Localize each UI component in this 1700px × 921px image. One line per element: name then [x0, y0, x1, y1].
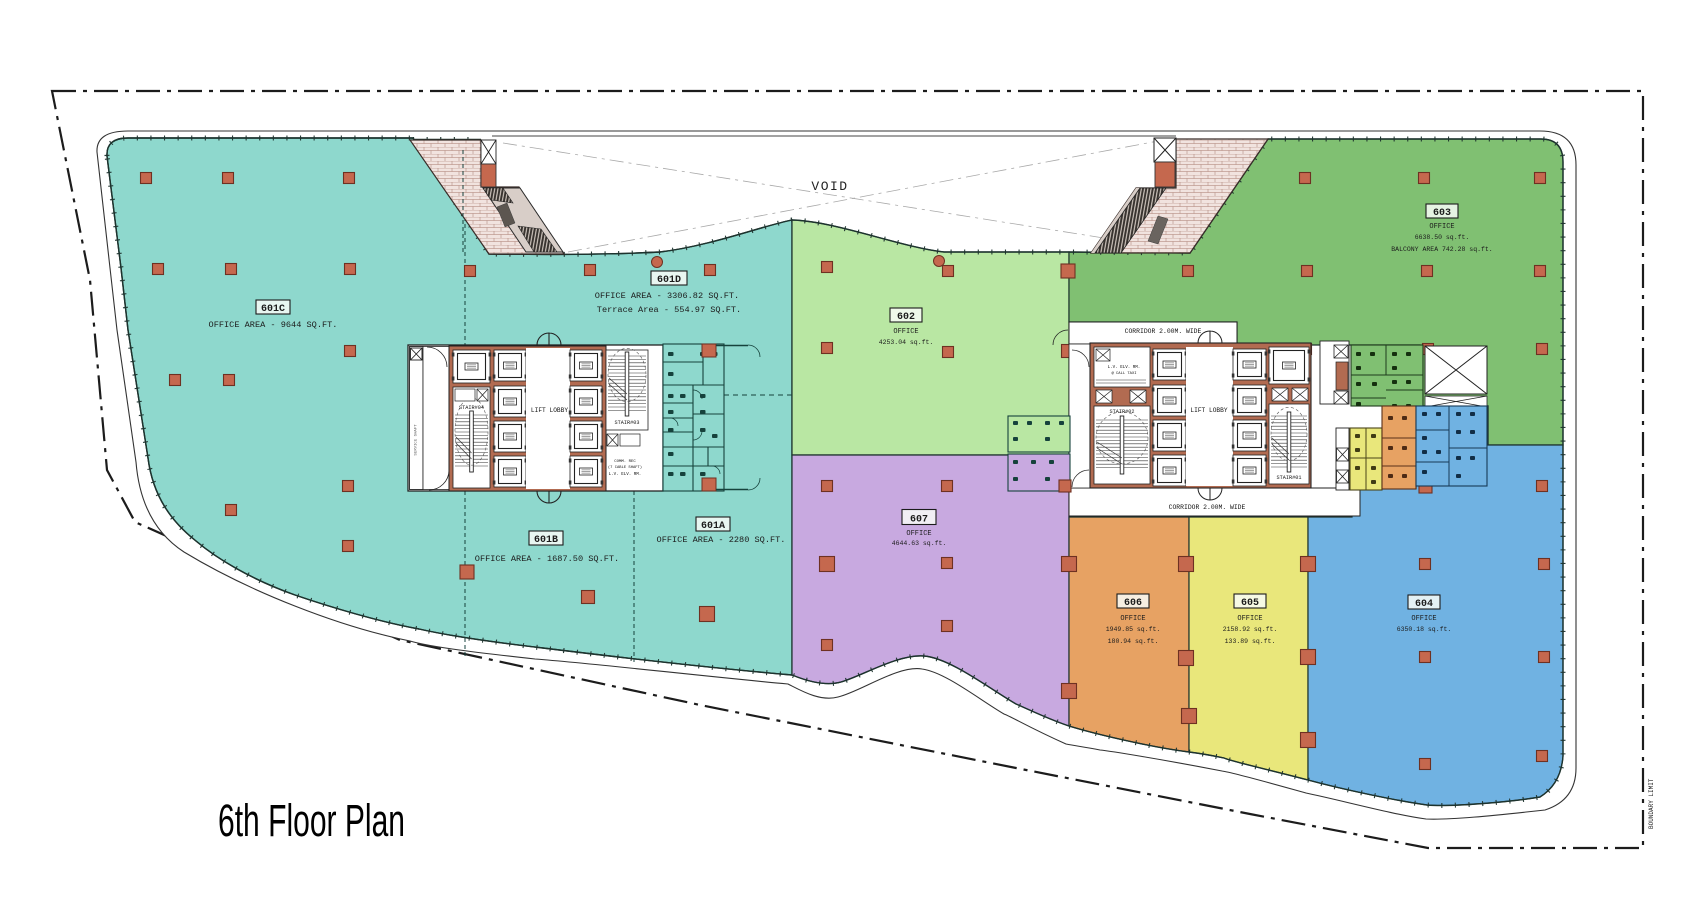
svg-text:180.94 sq.ft.: 180.94 sq.ft. [1108, 638, 1159, 645]
svg-text:602: 602 [897, 312, 915, 323]
svg-text:VOID: VOID [811, 179, 848, 194]
svg-text:133.89 sq.ft.: 133.89 sq.ft. [1225, 638, 1276, 645]
svg-text:LIFT LOBBY: LIFT LOBBY [1190, 407, 1227, 414]
svg-text:4253.04 sq.ft.: 4253.04 sq.ft. [879, 339, 934, 346]
svg-text:OFFICE AREA - 2280 SQ.FT.: OFFICE AREA - 2280 SQ.FT. [657, 535, 786, 545]
svg-text:STAIR#02: STAIR#02 [1110, 409, 1135, 415]
svg-text:COMM. REC: COMM. REC [614, 460, 636, 464]
svg-text:OFFICE AREA - 3306.82 SQ.FT.: OFFICE AREA - 3306.82 SQ.FT. [595, 291, 739, 301]
svg-text:STAIR#03: STAIR#03 [615, 420, 640, 426]
svg-text:605: 605 [1241, 598, 1259, 609]
svg-text:Terrace Area - 554.97 SQ.FT.: Terrace Area - 554.97 SQ.FT. [597, 305, 741, 315]
svg-text:601B: 601B [534, 535, 558, 546]
svg-text:OFFICE AREA - 9644 SQ.FT.: OFFICE AREA - 9644 SQ.FT. [209, 320, 338, 330]
svg-text:OFFICE: OFFICE [1411, 615, 1436, 623]
svg-text:6350.18 sq.ft.: 6350.18 sq.ft. [1397, 626, 1452, 633]
svg-text:OFFICE: OFFICE [1120, 615, 1145, 623]
svg-text:601D: 601D [657, 275, 681, 286]
svg-text:6638.50 sq.ft.: 6638.50 sq.ft. [1415, 234, 1470, 241]
svg-text:OFFICE AREA - 1687.50 SQ.FT.: OFFICE AREA - 1687.50 SQ.FT. [475, 554, 619, 564]
svg-text:2158.92 sq.ft.: 2158.92 sq.ft. [1223, 626, 1278, 633]
svg-text:SERVICE SHAFT: SERVICE SHAFT [415, 424, 419, 456]
svg-text:STAIR#01: STAIR#01 [1277, 475, 1302, 481]
svg-text:OFFICE: OFFICE [1237, 615, 1262, 623]
svg-text:604: 604 [1415, 599, 1433, 610]
svg-text:STAIR#04: STAIR#04 [459, 405, 484, 411]
svg-text:CORRIDOR 2.00M. WIDE: CORRIDOR 2.00M. WIDE [1125, 328, 1202, 335]
svg-text:1949.85 sq.ft.: 1949.85 sq.ft. [1106, 626, 1161, 633]
svg-text:BOUNDARY LIMIT: BOUNDARY LIMIT [1648, 778, 1655, 829]
svg-text:6th Floor Plan: 6th Floor Plan [218, 795, 405, 846]
svg-text:@ CALL TAXI: @ CALL TAXI [1111, 371, 1136, 376]
svg-text:OFFICE: OFFICE [1429, 223, 1454, 231]
svg-text:601C: 601C [261, 304, 285, 315]
svg-text:LIFT LOBBY: LIFT LOBBY [531, 407, 568, 414]
svg-text:606: 606 [1124, 598, 1142, 609]
svg-text:607: 607 [910, 514, 928, 525]
svg-text:CORRIDOR 2.00M. WIDE: CORRIDOR 2.00M. WIDE [1169, 504, 1246, 511]
svg-text:L.V. ELV. RM.: L.V. ELV. RM. [1108, 366, 1141, 370]
svg-text:(7 CABLE SHAFT): (7 CABLE SHAFT) [608, 465, 642, 470]
svg-text:OFFICE: OFFICE [906, 530, 931, 538]
svg-text:L.V. ELV. RM.: L.V. ELV. RM. [609, 473, 642, 477]
svg-text:603: 603 [1433, 208, 1451, 219]
svg-text:OFFICE: OFFICE [893, 328, 918, 336]
svg-text:4644.63 sq.ft.: 4644.63 sq.ft. [892, 540, 947, 547]
svg-text:601A: 601A [701, 521, 725, 532]
svg-text:BALCONY AREA 742.28 sq.ft.: BALCONY AREA 742.28 sq.ft. [1391, 246, 1492, 253]
